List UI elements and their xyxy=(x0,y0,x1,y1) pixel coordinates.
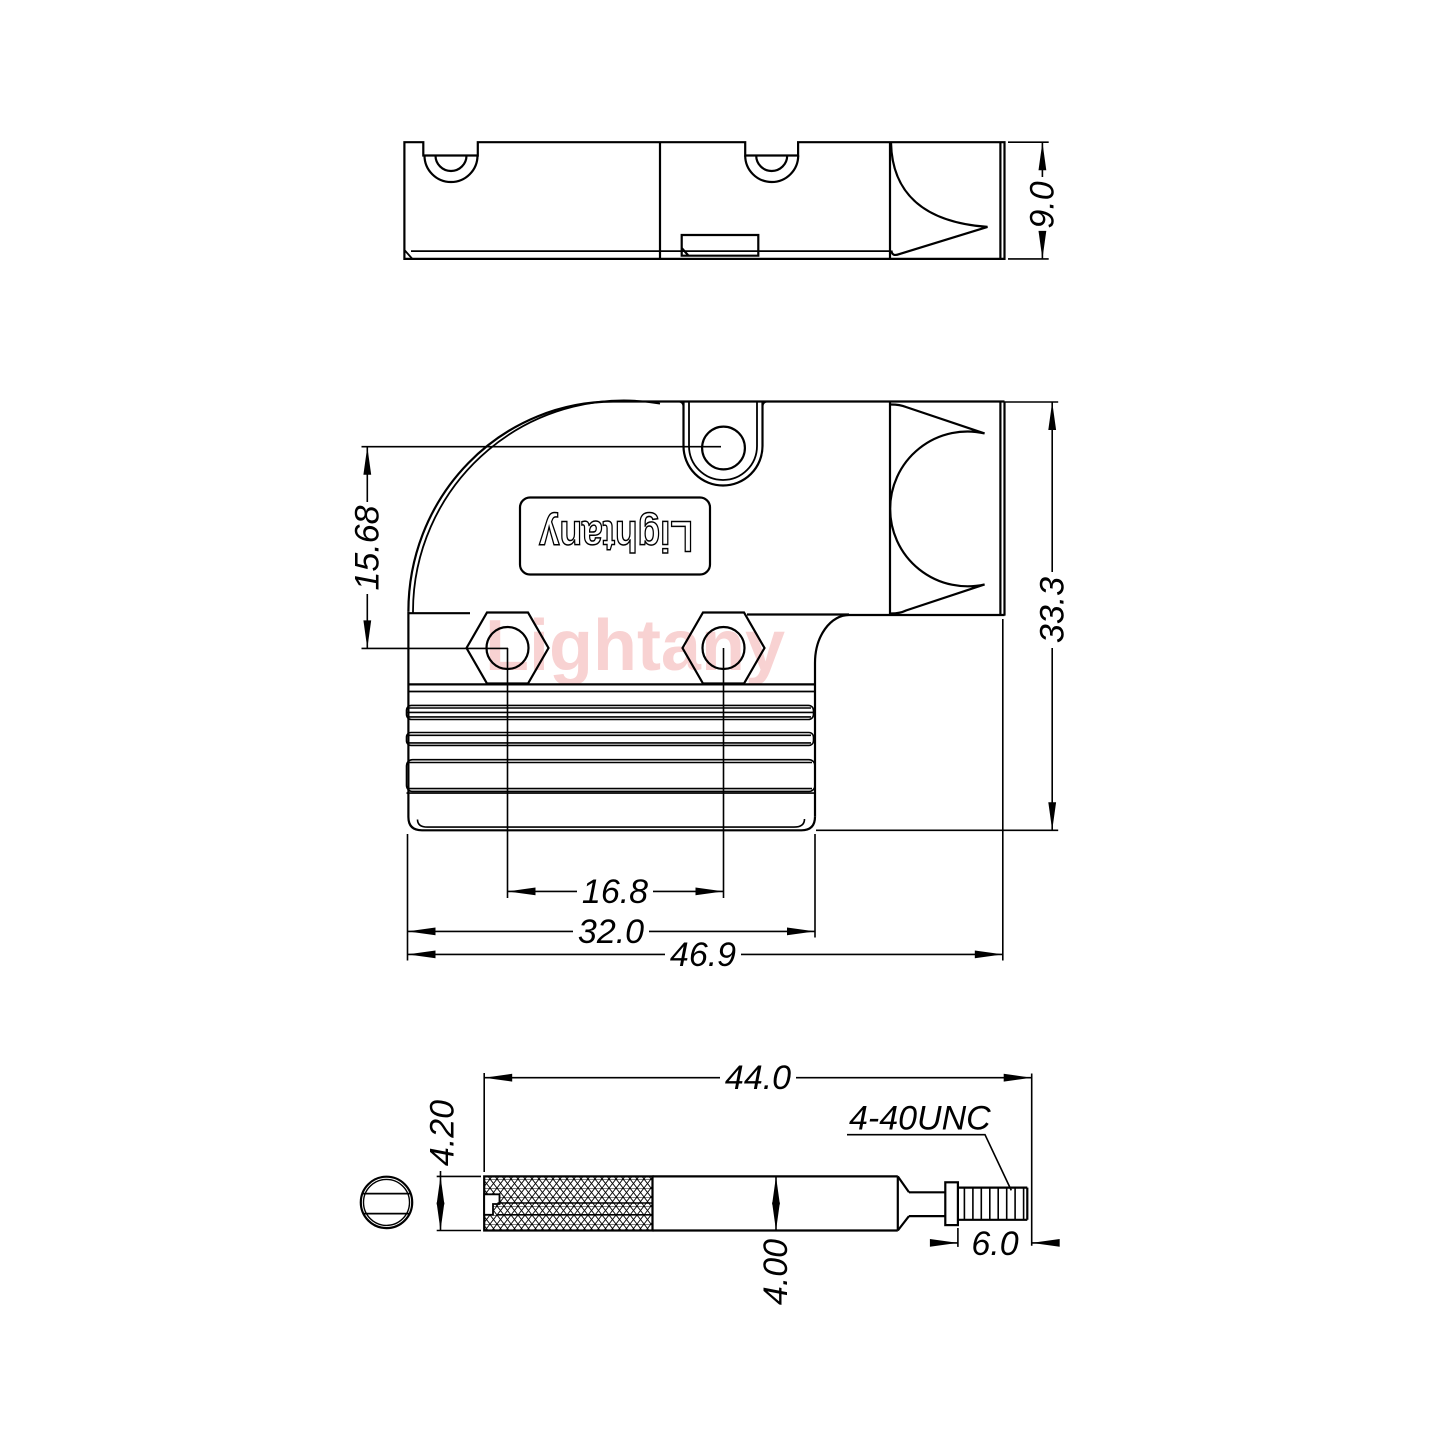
svg-text:32.0: 32.0 xyxy=(578,913,644,951)
svg-text:15.68: 15.68 xyxy=(349,505,387,590)
svg-text:44.0: 44.0 xyxy=(725,1059,791,1097)
svg-text:9.0: 9.0 xyxy=(1024,181,1062,228)
svg-text:16.8: 16.8 xyxy=(582,873,648,911)
svg-text:46.9: 46.9 xyxy=(670,936,736,974)
svg-text:33.3: 33.3 xyxy=(1034,577,1072,643)
svg-text:Lightany: Lightany xyxy=(539,512,693,562)
svg-text:4.00: 4.00 xyxy=(757,1239,795,1305)
svg-text:6.0: 6.0 xyxy=(971,1225,1018,1263)
svg-text:4.20: 4.20 xyxy=(424,1100,462,1166)
svg-text:4-40UNC: 4-40UNC xyxy=(849,1100,991,1138)
